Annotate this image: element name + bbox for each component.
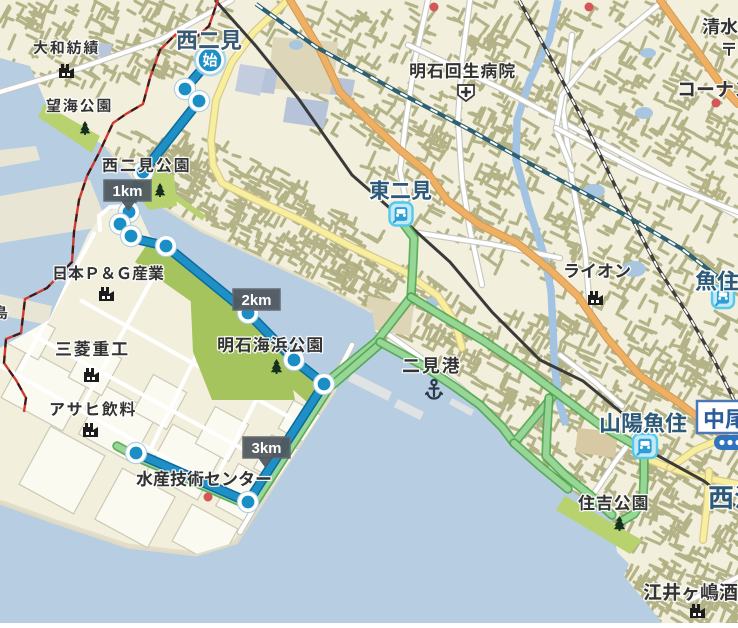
svg-text:2km: 2km: [241, 292, 271, 309]
svg-text:3km: 3km: [251, 440, 281, 457]
svg-text:1km: 1km: [112, 183, 142, 200]
